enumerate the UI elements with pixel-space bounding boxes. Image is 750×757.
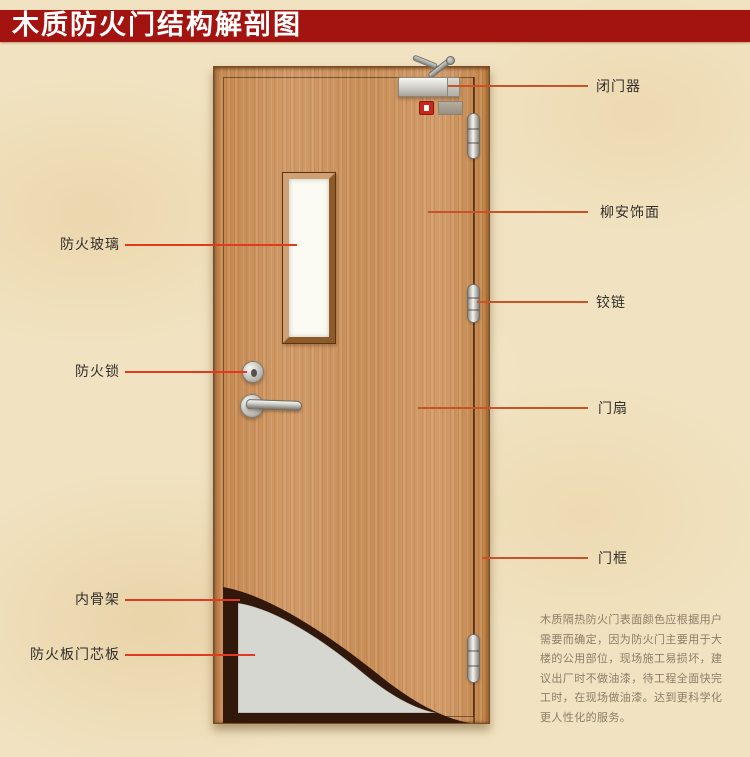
label-door-frame: 门框 bbox=[598, 548, 628, 568]
note-line: 工时，在现场做油漆。达到更科学化 bbox=[540, 689, 725, 709]
leader-line-door-leaf bbox=[418, 407, 588, 409]
label-fire-glass: 防火玻璃 bbox=[60, 234, 120, 254]
page-title: 木质防火门结构解剖图 bbox=[0, 10, 750, 41]
cutaway-section bbox=[214, 577, 491, 725]
leader-line-hinge bbox=[477, 301, 588, 303]
product-note: 木质隔热防火门表面颜色应根据用户 需要而确定，因为防火门主要用于大 楼的公用部位… bbox=[540, 611, 725, 728]
door-closer-body bbox=[398, 77, 460, 97]
fire-glass-window bbox=[282, 172, 336, 344]
hinge-middle bbox=[467, 284, 480, 323]
label-plate bbox=[438, 101, 463, 115]
note-line: 木质隔热防火门表面颜色应根据用户 bbox=[540, 611, 725, 631]
hinge-top bbox=[467, 113, 480, 159]
glass-pane bbox=[283, 173, 335, 343]
label-inner-frame: 内骨架 bbox=[75, 589, 120, 609]
note-line: 需要而确定，因为防火门主要用于大 bbox=[540, 631, 725, 651]
label-core-board: 防火板门芯板 bbox=[30, 644, 120, 664]
leader-line-door-frame bbox=[482, 557, 588, 559]
label-door-leaf: 门扇 bbox=[598, 398, 628, 418]
note-line: 议出厂时不做油漆，待工程全面快完 bbox=[540, 670, 725, 690]
page-background: { "title": "木质防火门结构解剖图", "colors": { "ba… bbox=[0, 0, 750, 757]
label-fire-lock: 防火锁 bbox=[75, 361, 120, 381]
title-banner: 木质防火门结构解剖图 bbox=[0, 10, 750, 42]
leader-line-core-board bbox=[125, 654, 255, 656]
alarm-indicator bbox=[419, 101, 434, 115]
leader-line-door-closer bbox=[448, 85, 588, 87]
door-handle-lever bbox=[246, 399, 302, 411]
leader-line-veneer bbox=[428, 211, 588, 213]
door-assembly bbox=[213, 66, 490, 724]
leader-line-fire-lock bbox=[125, 371, 247, 373]
note-line: 更人性化的服务。 bbox=[540, 709, 725, 729]
leader-line-inner-frame bbox=[125, 599, 240, 601]
label-door-closer: 闭门器 bbox=[596, 76, 641, 96]
keyhole bbox=[251, 369, 257, 377]
note-line: 楼的公用部位，现场施工易损坏，建 bbox=[540, 650, 725, 670]
label-veneer: 柳安饰面 bbox=[600, 202, 660, 222]
label-hinge: 铰链 bbox=[596, 292, 626, 312]
leader-line-fire-glass bbox=[125, 244, 297, 246]
